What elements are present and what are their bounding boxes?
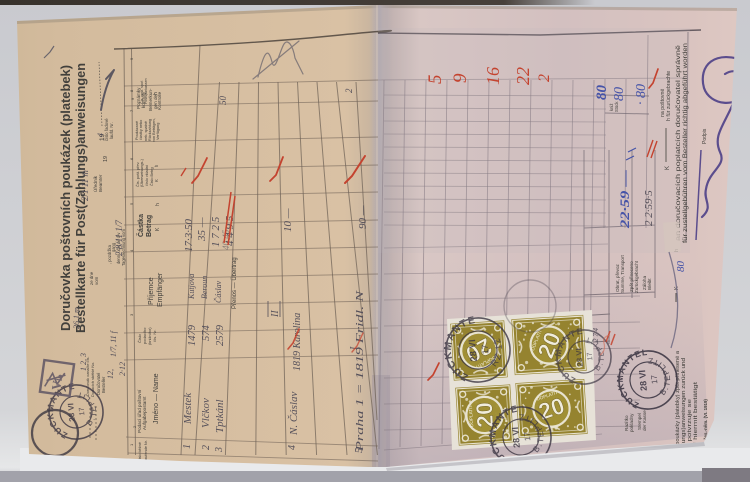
svg-text:K: K (154, 179, 159, 182)
svg-text:1 2, 3: 1 2, 3 (79, 353, 88, 371)
svg-text:10 —: 10 — (282, 208, 294, 232)
svg-text:50: 50 (218, 96, 228, 106)
svg-text:h für zurückgebrachte: h für zurückgebrachte (666, 71, 672, 121)
svg-text:Kutjova: Kutjova (187, 274, 196, 300)
svg-text:2/1·11 m̄: 2/1·11 m̄ (80, 170, 90, 201)
svg-text:1479: 1479 (187, 324, 198, 346)
svg-text:Čislo Betrg: Čislo Betrg (149, 167, 154, 186)
svg-text:35 —: 35 — (196, 217, 208, 242)
svg-text:17: 17 (650, 374, 660, 384)
svg-text:(Überweisungs-): (Überweisungs-) (140, 158, 144, 187)
svg-text:h: h (153, 92, 159, 95)
svg-text:Laufende Nr.: Laufende Nr. (144, 440, 148, 462)
svg-text:Mestek: Mestek (182, 392, 194, 425)
svg-text:4: 4 (96, 133, 105, 137)
svg-text:Summe, Transport: Summe, Transport (620, 254, 625, 293)
svg-text:5: 5 (425, 75, 446, 85)
svg-text:2 8/11 1/7: 2 8/11 1/7 (114, 220, 124, 256)
svg-text:19: 19 (103, 156, 109, 162)
svg-text:der Kasse: der Kasse (642, 410, 647, 431)
svg-text:Čislo běžné: Čislo běžné (137, 442, 142, 462)
svg-text:3: 3 (214, 447, 225, 453)
svg-text:Beroun: Beroun (200, 276, 209, 299)
svg-text:2: 2 (344, 88, 354, 93)
svg-text:Podpis: Podpis (702, 128, 708, 144)
svg-text:26,1 m: 26,1 m (72, 307, 81, 329)
svg-text:2 2·59·5: 2 2·59·5 (643, 190, 655, 226)
svg-text:Příjemce: Příjemce (148, 277, 155, 305)
svg-text:22: 22 (513, 67, 533, 85)
svg-text:80: 80 (612, 87, 627, 101)
svg-text:Tptkánl: Tptkánl (214, 399, 226, 433)
svg-text:Přenos — Übertrag: Přenos — Übertrag (231, 257, 238, 309)
svg-text:Zurückgebracht: Zurückgebracht (634, 260, 639, 293)
svg-text:h: h (155, 203, 161, 206)
svg-text:Praha 1 = 1819 Fridl. N: Praha 1 = 1819 Fridl. N (354, 290, 366, 452)
svg-text:Vlčkov: Vlčkov (200, 398, 212, 428)
svg-text:Čáslav: Čáslav (213, 280, 223, 303)
svg-text:2·12: 2·12 (118, 362, 127, 376)
svg-text:9: 9 (450, 73, 471, 83)
svg-text:Betrag: Betrag (146, 215, 153, 237)
svg-text:12,: 12, (106, 369, 115, 379)
svg-text:1/7, 11 f: 1/7, 11 f (109, 329, 118, 357)
svg-text:číslo vkladní: číslo vkladní (145, 164, 149, 186)
svg-text:Bleibt: Bleibt (647, 278, 652, 290)
svg-text:2: 2 (201, 445, 212, 450)
svg-text:für zustellgebühren vom Bestel: für zustellgebühren vom Besteller richti… (683, 43, 689, 243)
svg-text:28 VI: 28 VI (467, 339, 480, 362)
svg-text:22·59 —: 22·59 — (617, 170, 632, 229)
svg-text:II: II (270, 310, 281, 318)
svg-text:pokladny: pokladny (629, 413, 634, 432)
svg-text:laufd. Nr.: laufd. Nr. (109, 122, 114, 139)
svg-text:vom: vom (94, 276, 99, 285)
svg-text:28 VI: 28 VI (574, 348, 585, 367)
svg-text:17·3·50: 17·3·50 (183, 219, 195, 253)
svg-text:2579: 2579 (215, 324, 226, 346)
svg-text:80: 80 (675, 261, 687, 273)
svg-text:4: 4 (287, 445, 298, 450)
svg-text:17: 17 (523, 431, 533, 441)
svg-text:Jméno — Name: Jméno — Name (153, 373, 160, 424)
svg-text:28 VI: 28 VI (637, 370, 649, 392)
svg-text:an doručovacích poplatcích dor: an doručovacích poplatcích doručovatel s… (676, 44, 682, 241)
svg-text:90 —: 90 — (357, 205, 369, 229)
svg-text:K: K (665, 166, 671, 170)
svg-text:Doručovka poštovních poukázek: Doručovka poštovních poukázek (platebek) (59, 65, 73, 331)
svg-text:2: 2 (536, 74, 553, 82)
svg-text:17: 17 (77, 407, 87, 416)
svg-text:28 VI: 28 VI (66, 403, 77, 422)
svg-text:Postsparkassen: Postsparkassen (144, 78, 148, 104)
svg-text:28 VI: 28 VI (510, 427, 522, 449)
svg-text:16: 16 (483, 67, 503, 85)
svg-text:574: 574 (201, 325, 212, 342)
svg-text:čís. Nr.: čís. Nr. (152, 330, 157, 342)
svg-text:částky nebo: částky nebo (139, 120, 143, 140)
svg-text:N. Čáslav: N. Čáslav (288, 391, 300, 436)
svg-text:80: 80 (594, 85, 610, 101)
svg-text:Empfänger: Empfänger (157, 272, 164, 307)
svg-text:1: 1 (182, 444, 193, 449)
svg-text:Verfügung: Verfügung (156, 123, 160, 140)
svg-text:17: 17 (585, 352, 595, 361)
svg-text:17: 17 (480, 344, 491, 355)
svg-text:Beamter: Beamter (98, 174, 103, 192)
svg-text:Částka: Částka (136, 214, 145, 237)
svg-text:Aufgabepostamt: Aufgabepostamt (142, 396, 147, 430)
svg-text:Stück: Stück (614, 101, 619, 112)
svg-text:· 80: · 80 (634, 84, 649, 105)
